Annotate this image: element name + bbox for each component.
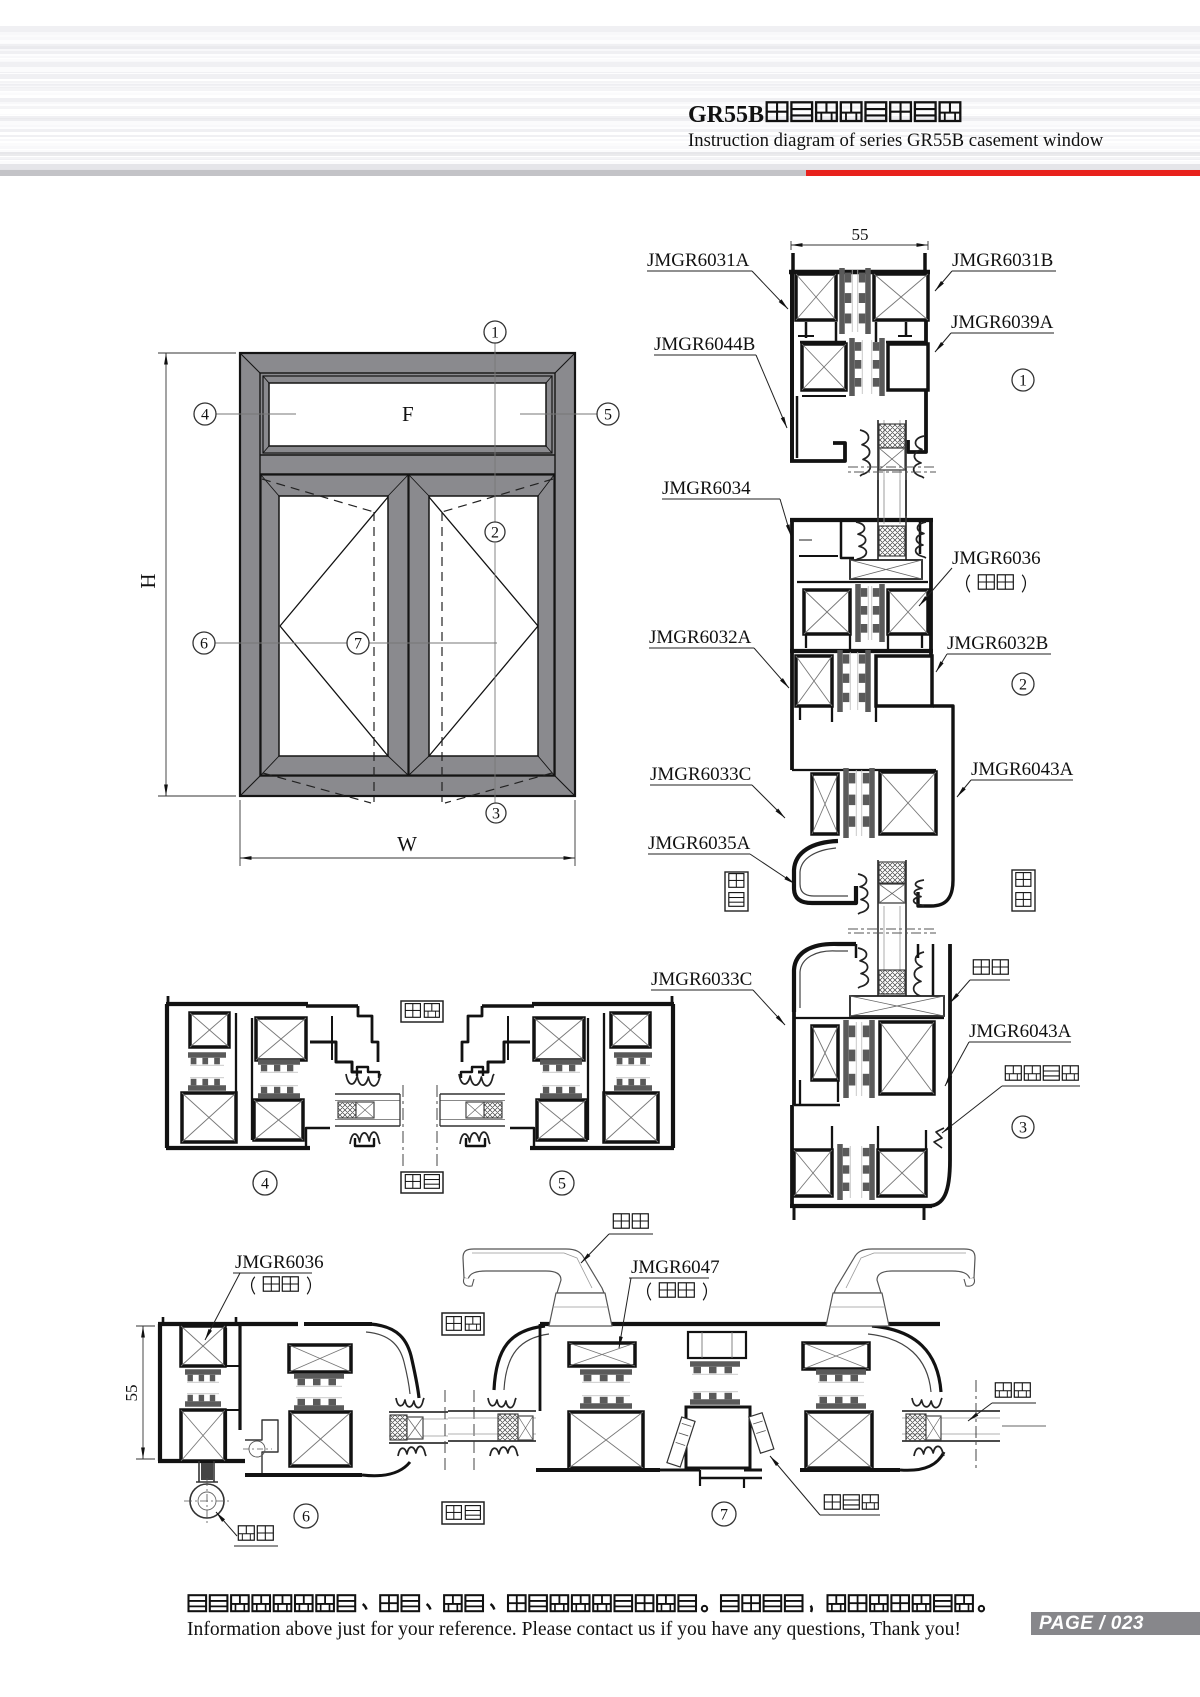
svg-text:JMGR6047: JMGR6047 — [631, 1257, 720, 1278]
svg-text:JMGR6035A: JMGR6035A — [648, 833, 751, 854]
svg-text:6: 6 — [302, 1508, 310, 1525]
svg-text:2: 2 — [1019, 676, 1027, 693]
svg-text:JMGR6033C: JMGR6033C — [651, 969, 752, 990]
svg-text:JMGR6032A: JMGR6032A — [649, 627, 752, 648]
svg-text:JMGR6044B: JMGR6044B — [654, 334, 755, 355]
svg-text:4: 4 — [201, 406, 209, 423]
svg-text:55: 55 — [852, 225, 869, 244]
svg-text:55: 55 — [122, 1385, 141, 1402]
svg-text:6: 6 — [200, 635, 208, 652]
svg-text:Instruction diagram of series: Instruction diagram of series GR55B case… — [688, 130, 1104, 151]
svg-text:5: 5 — [558, 1175, 566, 1192]
svg-text:5: 5 — [604, 406, 612, 423]
svg-text:1: 1 — [491, 324, 499, 341]
svg-text:JMGR6031A: JMGR6031A — [647, 250, 750, 271]
svg-text:JMGR6036: JMGR6036 — [235, 1252, 324, 1273]
svg-text:4: 4 — [261, 1175, 269, 1192]
svg-text:2: 2 — [491, 524, 499, 541]
svg-text:JMGR6043A: JMGR6043A — [971, 759, 1074, 780]
svg-text:GR55B: GR55B — [688, 102, 764, 128]
svg-text:JMGR6039A: JMGR6039A — [951, 312, 1054, 333]
svg-text:JMGR6036: JMGR6036 — [952, 548, 1041, 569]
svg-text:F: F — [402, 402, 414, 426]
svg-text:H: H — [136, 573, 160, 588]
svg-text:7: 7 — [720, 1506, 728, 1523]
svg-text:Information above just for you: Information above just for your referenc… — [187, 1619, 961, 1640]
svg-text:3: 3 — [492, 805, 500, 822]
svg-text:W: W — [397, 832, 417, 856]
svg-text:JMGR6032B: JMGR6032B — [947, 633, 1048, 654]
svg-text:3: 3 — [1019, 1119, 1027, 1136]
svg-text:1: 1 — [1019, 372, 1027, 389]
svg-text:JMGR6033C: JMGR6033C — [650, 764, 751, 785]
svg-text:JMGR6043A: JMGR6043A — [969, 1021, 1072, 1042]
svg-text:7: 7 — [354, 635, 362, 652]
svg-text:JMGR6034: JMGR6034 — [662, 478, 751, 499]
svg-text:JMGR6031B: JMGR6031B — [952, 250, 1053, 271]
